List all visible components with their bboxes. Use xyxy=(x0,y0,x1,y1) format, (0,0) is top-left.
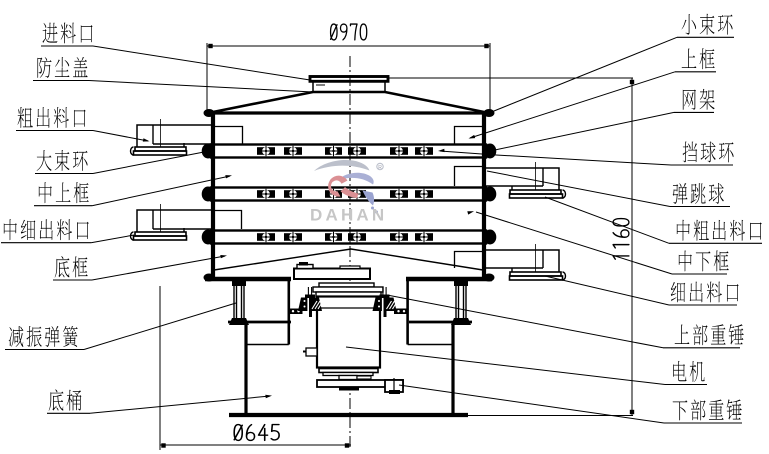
svg-text:R: R xyxy=(378,165,382,171)
svg-text:DAHAN: DAHAN xyxy=(310,206,387,225)
